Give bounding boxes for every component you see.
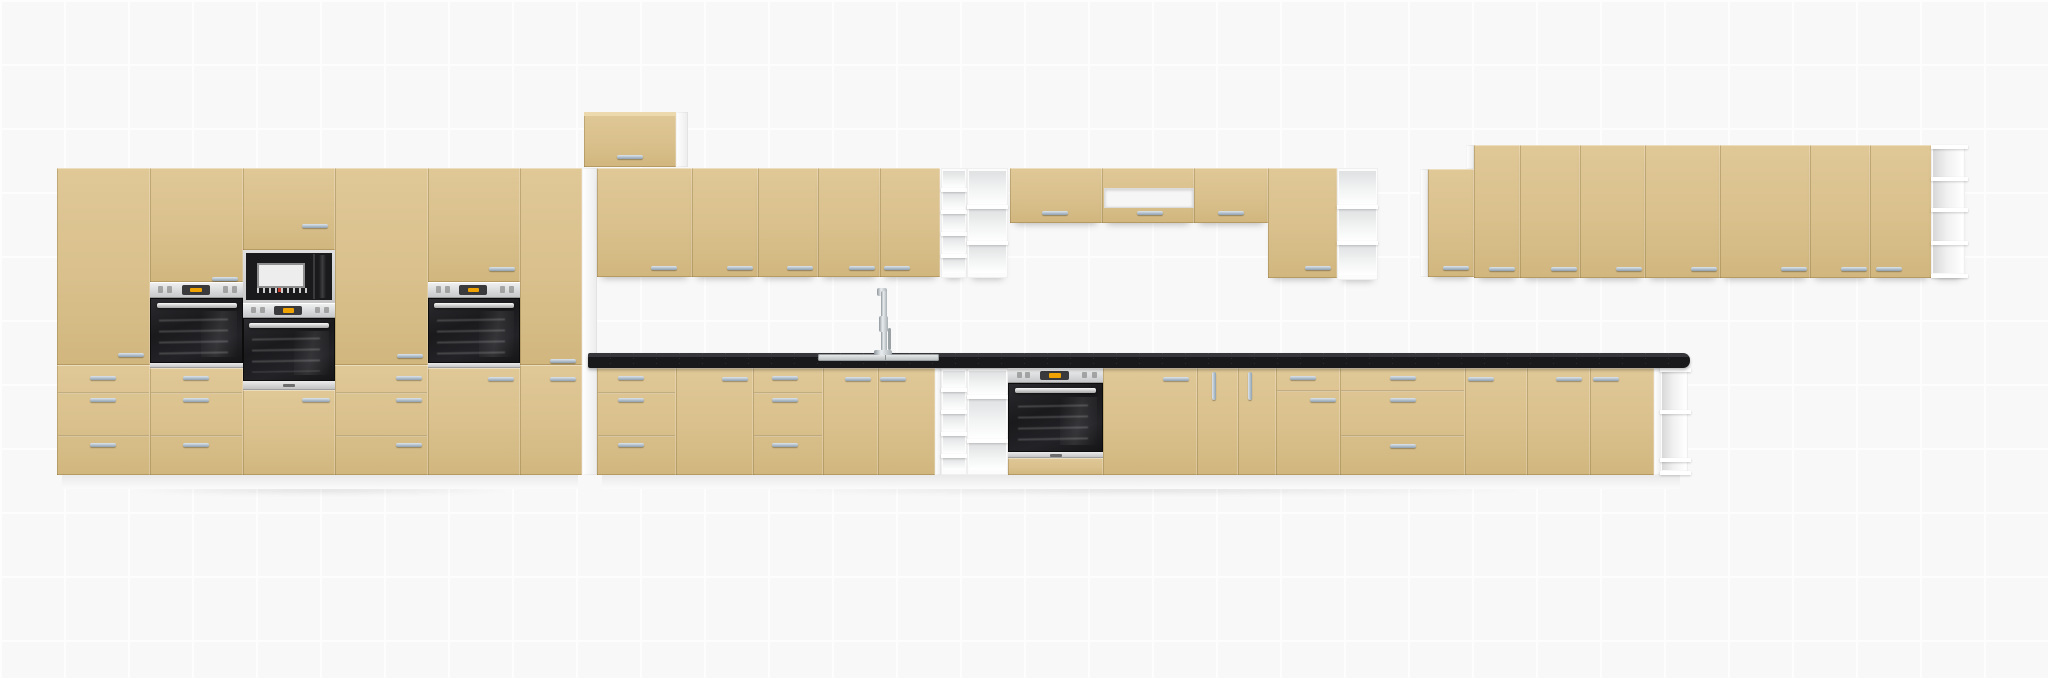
cabinet-handle (1218, 211, 1244, 215)
base-sink-door-right[interactable] (878, 368, 935, 475)
oven-display (274, 306, 302, 315)
shelf-board (941, 232, 967, 236)
shelf-cell (969, 171, 1006, 205)
base-door-1[interactable] (676, 368, 753, 475)
shelf-board (1660, 471, 1691, 475)
countertop[interactable] (588, 353, 1690, 368)
shelf-cell (969, 399, 1006, 439)
base-drawer-unit-3[interactable] (1340, 368, 1465, 475)
tall-cab-3-oven-strip[interactable] (243, 381, 335, 390)
cabinet-handle (183, 376, 209, 380)
cabinet-handle (488, 377, 514, 381)
oven-display-orange (468, 288, 480, 293)
oven-glass-reflection (479, 311, 515, 357)
shelf-cell (1339, 245, 1376, 275)
wall-cab-door-3[interactable] (758, 168, 818, 277)
faucet-base (874, 350, 892, 355)
oven-control-icon (158, 286, 163, 292)
base-sink-door-left[interactable] (823, 368, 878, 475)
drawer-seam (754, 435, 822, 437)
cabinet-handle (787, 266, 813, 270)
wall-right-side-panel (1420, 169, 1428, 277)
cabinet-handle (1781, 267, 1807, 271)
oven-display-orange (190, 288, 202, 293)
shelf-cell (943, 171, 965, 188)
cabinet-handle (727, 266, 753, 270)
oven-logo (1050, 454, 1062, 457)
bridge-side-panel (676, 112, 688, 167)
tall-cab-5-lower-door[interactable] (428, 368, 520, 475)
shelf-cell (943, 392, 965, 410)
base-oven-drawer-front[interactable] (1008, 458, 1103, 475)
oven-control-icon (1017, 372, 1022, 378)
base-end-open-shelf[interactable] (1660, 368, 1688, 475)
oven-handle-bar (434, 303, 513, 308)
tall-cab-4-drawers[interactable] (335, 365, 428, 475)
shelf-board (941, 432, 967, 436)
shelf-cell (943, 458, 965, 470)
oven-control-icon (436, 286, 441, 292)
cabinet-handle (1390, 376, 1416, 380)
hood-glass-inset (1104, 188, 1194, 208)
tall-cab-3-microwave[interactable] (243, 250, 335, 303)
tall-cab-3-oven-door[interactable] (243, 318, 335, 381)
wall-right-door-8[interactable] (1870, 145, 1932, 278)
shelf-board (1337, 241, 1378, 245)
cabinet-handle (396, 376, 422, 380)
tall-cab-2-oven-control-panel[interactable] (150, 282, 243, 298)
base-drawer-door-unit[interactable] (1276, 368, 1340, 475)
cabinet-handle (1163, 377, 1189, 381)
oven-display (1040, 371, 1069, 380)
cabinet-handle (302, 224, 328, 228)
oven-control-icon (445, 286, 450, 292)
cabinet-handle (550, 359, 576, 363)
cabinet-handle (845, 377, 871, 381)
tall-cab-6-upper-door[interactable] (520, 168, 582, 365)
wall-short-door-1[interactable] (1010, 168, 1102, 223)
shelf-board (1660, 458, 1691, 462)
drawer-seam (598, 392, 675, 394)
oven-control-icon (223, 286, 228, 292)
cabinet-handle (396, 443, 422, 447)
cabinet-handle (884, 266, 910, 270)
wall-cab-door-1[interactable] (597, 168, 692, 277)
cabinet-handle (772, 398, 798, 402)
cabinet-handle (1841, 267, 1867, 271)
shelf-cell (1933, 148, 1963, 177)
shelf-board (1660, 368, 1691, 372)
cabinet-handle (722, 377, 748, 381)
cabinet-handle (880, 377, 906, 381)
drawer-seam (58, 392, 149, 394)
cabinet-handle (1443, 266, 1469, 270)
oven-control-icon (315, 307, 320, 313)
cabinet-handle (1137, 211, 1163, 215)
wall-right-door-6[interactable] (1720, 145, 1810, 278)
shelf-board (1660, 410, 1691, 414)
cabinet-handle (849, 266, 875, 270)
tall-cab-1-upper-door[interactable] (57, 168, 150, 365)
oven-glass-reflection (1060, 397, 1097, 445)
cabinet-handle (183, 443, 209, 447)
shelf-cell (943, 436, 965, 454)
bridge-wall-cabinet[interactable] (584, 112, 676, 167)
oven-control-icon (251, 307, 256, 313)
wall-right-door-2[interactable] (1474, 145, 1520, 278)
faucet-lever (888, 328, 891, 350)
wall-hood-cabinet[interactable] (1102, 168, 1194, 223)
tall-cab-2-drawers[interactable] (150, 368, 243, 475)
shelf-cell (1662, 414, 1686, 458)
drawer-seam (151, 435, 242, 437)
base-door-7[interactable] (1590, 368, 1654, 475)
wall-right-door-1[interactable] (1428, 169, 1474, 277)
shelf-board (1931, 208, 1968, 212)
cabinet-handle (1248, 372, 1252, 400)
planner-canvas (0, 0, 2048, 678)
drawer-seam (1277, 390, 1339, 392)
base-open-shelf-unit[interactable] (967, 368, 1008, 475)
microwave-door-line (313, 254, 315, 299)
shelf-cell (943, 414, 965, 432)
drawer-seam (336, 435, 427, 437)
oven-display-orange (1049, 373, 1061, 378)
drawer-seam (598, 435, 675, 437)
wall-open-shelf-unit-2[interactable] (1337, 168, 1378, 280)
shelf-cell (1662, 462, 1686, 470)
tall-cab-2-oven-door[interactable] (150, 298, 243, 363)
cabinet-handle (651, 266, 677, 270)
cabinet-top-face (584, 112, 676, 116)
oven-handle-bar (249, 323, 328, 328)
shelf-board (941, 254, 967, 258)
wall-right-door-7[interactable] (1810, 145, 1870, 278)
shelf-cell (1933, 181, 1963, 208)
shelf-board (967, 241, 1008, 245)
shelf-cell (1339, 209, 1376, 241)
wall-right-door-3[interactable] (1520, 145, 1580, 278)
drawer-seam (151, 392, 242, 394)
cabinet-handle (90, 443, 116, 447)
shelf-cell (969, 245, 1006, 273)
tall-cab-6-lower-door[interactable] (520, 365, 582, 475)
tall-cab-2-upper-door[interactable] (150, 168, 243, 282)
faucet[interactable] (872, 288, 894, 355)
oven-control-icon (1025, 372, 1030, 378)
oven-display-orange (283, 308, 295, 313)
wall-cab-door-4[interactable] (818, 168, 880, 277)
cabinet-handle (396, 398, 422, 402)
cabinet-handle (1556, 377, 1582, 381)
shelf-cell (1933, 245, 1963, 273)
shelf-board (1931, 145, 1968, 149)
cabinet-handle (618, 443, 644, 447)
cabinet-handle (1691, 267, 1717, 271)
oven-control-icon (509, 286, 514, 292)
oven-control-icon (500, 286, 505, 292)
tall-cab-5-oven-door[interactable] (428, 298, 520, 363)
cabinet-handle (489, 267, 515, 271)
base-drawer-unit-2[interactable] (753, 368, 823, 475)
oven-display (182, 285, 210, 295)
shelf-board (967, 439, 1008, 443)
cabinet-handle (1468, 377, 1494, 381)
cabinet-handle (1390, 444, 1416, 448)
shelf-board (1931, 274, 1968, 278)
cabinet-handle (1876, 267, 1902, 271)
base-drawer-unit-1[interactable] (597, 368, 676, 475)
base-door-5[interactable] (1465, 368, 1527, 475)
tall-cab-3-upper-door[interactable] (243, 168, 335, 250)
cabinet-handle (1042, 211, 1068, 215)
wall-right-step-panel (1466, 145, 1474, 169)
wall-short-door-2[interactable] (1194, 168, 1268, 223)
countertop-speckle (588, 353, 1690, 368)
shelf-cell (943, 214, 965, 232)
tall-plinth (62, 475, 578, 489)
cabinet-handle (397, 354, 423, 358)
base-oven-door[interactable] (1008, 383, 1103, 452)
shelf-cell (969, 443, 1006, 470)
base-plinth (602, 475, 1680, 489)
drawer-seam (1341, 435, 1464, 437)
cabinet-handle (1305, 266, 1331, 270)
shelf-board (967, 395, 1008, 399)
drawer-seam (58, 435, 149, 437)
oven-handle-bar (1015, 388, 1097, 393)
cabinet-handle (1489, 267, 1515, 271)
cabinet-handle (183, 398, 209, 402)
oven-glass-reflection (294, 331, 330, 375)
tall-cab-4-upper-door[interactable] (335, 168, 428, 365)
shelf-board (941, 388, 967, 392)
oven-logo (283, 384, 295, 387)
cabinet-handle (772, 376, 798, 380)
wall-right-end-open-shelf[interactable] (1931, 145, 1965, 278)
cabinet-handle (618, 398, 644, 402)
shelf-cell (943, 371, 965, 388)
microwave-button-red (278, 288, 281, 292)
oven-control-icon (1082, 372, 1087, 378)
tall-run-side-panel (582, 168, 597, 475)
shelf-board (1337, 205, 1378, 209)
tall-cab-3-lower-door[interactable] (243, 390, 335, 475)
cabinet-handle (618, 376, 644, 380)
shelf-cell (943, 258, 965, 273)
cabinet-handle (1593, 377, 1619, 381)
wall-right-door-4[interactable] (1580, 145, 1645, 278)
wall-open-shelf-unit-1[interactable] (967, 168, 1008, 278)
shelf-cell (969, 209, 1006, 241)
oven-control-icon (260, 307, 265, 313)
cabinet-handle (118, 353, 144, 357)
microwave-window (257, 263, 305, 288)
cabinet-handle (302, 398, 330, 402)
shelf-cell (943, 192, 965, 210)
shelf-board (941, 188, 967, 192)
wall-open-cubby-column[interactable] (941, 168, 967, 278)
drawer-seam (336, 392, 427, 394)
base-oven-control-panel[interactable] (1008, 368, 1103, 383)
faucet-body (879, 316, 888, 332)
base-door-6[interactable] (1527, 368, 1590, 475)
base-door-3[interactable] (1197, 368, 1238, 475)
oven-control-icon (324, 307, 329, 313)
oven-control-icon (232, 286, 237, 292)
tall-cab-5-upper-door[interactable] (428, 168, 520, 282)
drawer-seam (1341, 390, 1464, 392)
cabinet-handle (90, 376, 116, 380)
oven-control-icon (1092, 372, 1097, 378)
tall-cab-1-drawers[interactable] (57, 365, 150, 475)
cabinet-handle (1616, 267, 1642, 271)
shelf-board (1931, 241, 1968, 245)
shelf-board (941, 454, 967, 458)
shelf-cell (969, 371, 1006, 395)
shelf-cell (1662, 371, 1686, 410)
tall-cab-3-microwave-control-panel[interactable] (243, 303, 335, 318)
tall-cab-5-oven-control-panel[interactable] (428, 282, 520, 298)
cabinet-handle (90, 398, 116, 402)
shelf-board (941, 410, 967, 414)
wall-cab-door-2[interactable] (692, 168, 758, 277)
cabinet-handle (617, 155, 643, 159)
shelf-cell (943, 236, 965, 254)
cabinet-handle (1212, 372, 1216, 400)
shelf-board (967, 205, 1008, 209)
wall-cab-door-6[interactable] (1268, 168, 1337, 278)
base-door-2[interactable] (1103, 368, 1197, 475)
cabinet-handle (212, 277, 238, 281)
oven-glass-reflection (201, 311, 237, 357)
cabinet-handle (1551, 267, 1577, 271)
cabinet-handle (1390, 398, 1416, 402)
oven-control-icon (167, 286, 172, 292)
cabinet-handle (772, 443, 798, 447)
sink-bowl-divider (885, 355, 886, 360)
wall-cab-door-5[interactable] (880, 168, 940, 277)
base-door-4[interactable] (1238, 368, 1276, 475)
cabinet-handle (1310, 398, 1336, 402)
sink[interactable] (818, 354, 939, 361)
shelf-cell (1339, 171, 1376, 205)
microwave-buttons (257, 288, 310, 293)
oven-handle-bar (157, 303, 237, 308)
cabinet-handle (1290, 376, 1316, 380)
cabinet-handle (550, 377, 576, 381)
shelf-board (1931, 177, 1968, 181)
base-open-cubby-column[interactable] (941, 368, 967, 475)
shelf-board (941, 210, 967, 214)
microwave-highlight (319, 255, 326, 297)
wall-right-door-5[interactable] (1645, 145, 1720, 278)
oven-display (459, 285, 487, 295)
drawer-seam (754, 392, 822, 394)
shelf-cell (1933, 212, 1963, 241)
